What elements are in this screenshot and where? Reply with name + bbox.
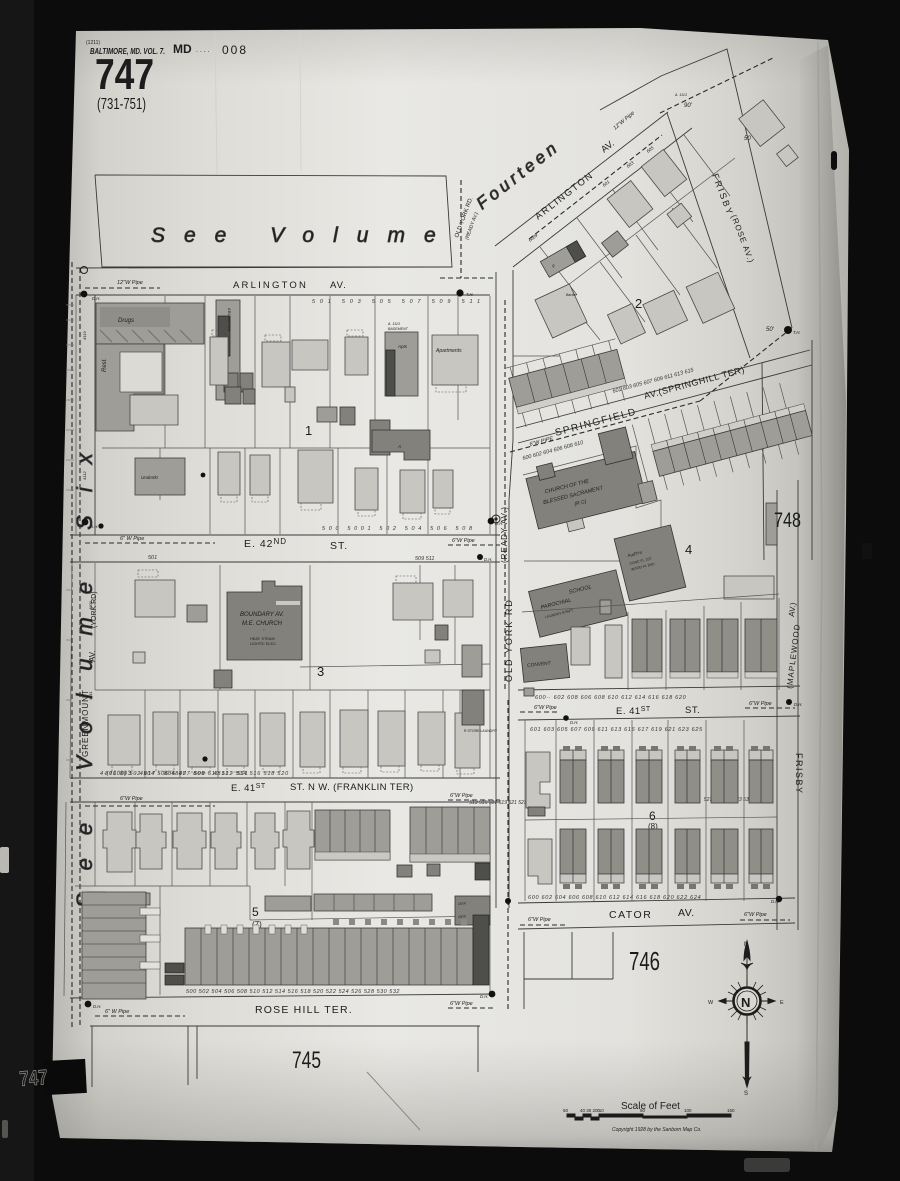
svg-text:6"W Pipe: 6"W Pipe <box>534 705 557 711</box>
svg-text:50: 50 <box>640 1108 646 1113</box>
svg-text:6"W Pipe: 6"W Pipe <box>450 1001 473 1007</box>
svg-text:6: 6 <box>649 809 656 823</box>
svg-text:747: 747 <box>95 50 154 99</box>
svg-text:AV.: AV. <box>88 650 97 662</box>
svg-text:6"W Pipe: 6"W Pipe <box>749 701 772 707</box>
svg-text:AV.): AV.) <box>787 602 798 618</box>
svg-text:AV.: AV. <box>678 907 695 919</box>
svg-text:ST.: ST. <box>685 705 700 716</box>
svg-text:OLD YORK RD: OLD YORK RD <box>504 598 514 682</box>
svg-text:MD: MD <box>173 42 192 56</box>
svg-text:6"W Pipe: 6"W Pipe <box>120 796 143 802</box>
svg-text:100: 100 <box>684 1108 692 1113</box>
svg-text:Rest.: Rest. <box>102 358 108 372</box>
svg-text:12"W Pipe: 12"W Pipe <box>117 280 143 286</box>
svg-text:150: 150 <box>727 1108 735 1113</box>
svg-text:. . . .: . . . . <box>196 47 210 54</box>
svg-text:Undertkr: Undertkr <box>141 475 159 480</box>
svg-text:ARLINGTON: ARLINGTON <box>233 280 308 291</box>
svg-text:008: 008 <box>222 43 248 57</box>
svg-text:AV.: AV. <box>330 280 347 291</box>
svg-text:50': 50' <box>766 327 775 333</box>
svg-text:4: 4 <box>685 542 692 557</box>
svg-text:6" W Pipe: 6" W Pipe <box>120 536 144 542</box>
svg-text:501: 501 <box>148 555 157 561</box>
svg-text:3: 3 <box>317 664 324 679</box>
svg-text:OFF.: OFF. <box>458 901 467 906</box>
svg-text:748: 748 <box>774 509 801 532</box>
svg-text:600 602 604 606 608: 600 602 604 606 608 610 612 614 616 618 … <box>528 895 701 901</box>
svg-text:FRISBY: FRISBY <box>794 753 804 795</box>
svg-text:BOUNDARY AV.: BOUNDARY AV. <box>240 612 284 618</box>
svg-text:4119: 4119 <box>82 331 87 340</box>
svg-text:N: N <box>741 995 750 1010</box>
svg-text:D.H.: D.H. <box>484 557 492 562</box>
svg-text:D.H.: D.H. <box>90 524 98 529</box>
svg-text:2: 2 <box>635 296 642 311</box>
svg-text:Copyright 1928 by the Sanborn: Copyright 1928 by the Sanborn Map Co. <box>612 1127 702 1133</box>
svg-text:(READY AV.): (READY AV.) <box>500 506 509 563</box>
svg-text:(1211): (1211) <box>86 40 100 46</box>
svg-text:6" W Pipe: 6" W Pipe <box>105 1009 129 1015</box>
svg-text:50: 50 <box>744 136 751 142</box>
svg-text:D.H.: D.H. <box>570 720 578 725</box>
svg-text:40 30 20 10: 40 30 20 10 <box>580 1108 604 1113</box>
svg-text:ST. N W. (FRANKLIN TER): ST. N W. (FRANKLIN TER) <box>290 782 414 793</box>
svg-text:746: 746 <box>629 946 660 976</box>
svg-text:D.H.: D.H. <box>93 1004 101 1009</box>
svg-text:Apts: Apts <box>397 344 408 349</box>
svg-text:513 515 517 519 521 523: 513 515 517 519 521 523 <box>469 800 527 806</box>
svg-text:CATOR: CATOR <box>609 909 652 921</box>
svg-text:6"W Pipe: 6"W Pipe <box>450 793 473 799</box>
svg-text:600·· 602 608 606 608: 600·· 602 608 606 608 610 612 614 616 61… <box>535 695 687 701</box>
svg-text:D.H.: D.H. <box>794 702 802 707</box>
svg-text:ROSE HILL TER.: ROSE HILL TER. <box>255 1004 353 1016</box>
svg-text:4112: 4112 <box>82 471 87 480</box>
svg-text:(731-751): (731-751) <box>97 96 146 113</box>
svg-text:747: 747 <box>19 1066 49 1091</box>
svg-text:OFF.: OFF. <box>458 914 467 919</box>
svg-text:6"W Pipe: 6"W Pipe <box>452 538 475 544</box>
svg-text:BASEMENT: BASEMENT <box>388 327 409 331</box>
svg-text:HEAT: STEAM: HEAT: STEAM <box>250 637 275 641</box>
svg-text:A. 1113: A. 1113 <box>387 322 400 326</box>
svg-text:509 511: 509 511 <box>415 556 434 562</box>
svg-text:LIGHTS: ELEC.: LIGHTS: ELEC. <box>250 642 277 646</box>
svg-text:4800: 4800 <box>88 600 93 610</box>
svg-text:50: 50 <box>563 1108 569 1113</box>
svg-text:5: 5 <box>252 905 259 919</box>
svg-text:T.H.: T.H. <box>793 330 801 335</box>
svg-text:T.H.: T.H. <box>466 292 474 297</box>
svg-text:D.H.: D.H. <box>92 296 100 301</box>
svg-text:6"W Pipe: 6"W Pipe <box>744 912 767 918</box>
svg-text:500 502 504 506 508 510: 500 502 504 506 508 510 512 514 516 518 … <box>186 989 400 995</box>
svg-text:R STORE LAUNDRY: R STORE LAUNDRY <box>464 729 498 733</box>
svg-text:Drugs: Drugs <box>118 318 134 324</box>
svg-text:W: W <box>708 1000 714 1006</box>
svg-text:90': 90' <box>684 103 693 109</box>
svg-text:745: 745 <box>292 1047 321 1074</box>
svg-text:ARLINGTON: ARLINGTON <box>227 308 232 331</box>
svg-text:A: A <box>397 444 401 449</box>
svg-text:M.E. CHURCH: M.E. CHURCH <box>242 621 283 627</box>
svg-text:Scale of Feet: Scale of Feet <box>621 1101 680 1112</box>
svg-text:S: S <box>744 1091 748 1097</box>
svg-text:E: E <box>780 1000 784 1006</box>
svg-text:D.H.: D.H. <box>480 994 488 999</box>
svg-text:Apartments: Apartments <box>435 348 462 354</box>
svg-text:See Volume: See Volume <box>151 224 455 247</box>
svg-text:4811: 4811 <box>88 691 93 700</box>
svg-text:ST.: ST. <box>330 540 348 552</box>
svg-text:Barber: Barber <box>566 293 578 297</box>
svg-text:6"W Pipe: 6"W Pipe <box>528 917 551 923</box>
svg-text:4·(7600) 502 504 506:: 4·(7600) 502 504 506:4847 · 508 510 512 … <box>100 771 289 777</box>
svg-text:A. 1113: A. 1113 <box>674 93 687 97</box>
svg-text:N: N <box>744 942 748 948</box>
svg-text:1: 1 <box>305 423 312 438</box>
